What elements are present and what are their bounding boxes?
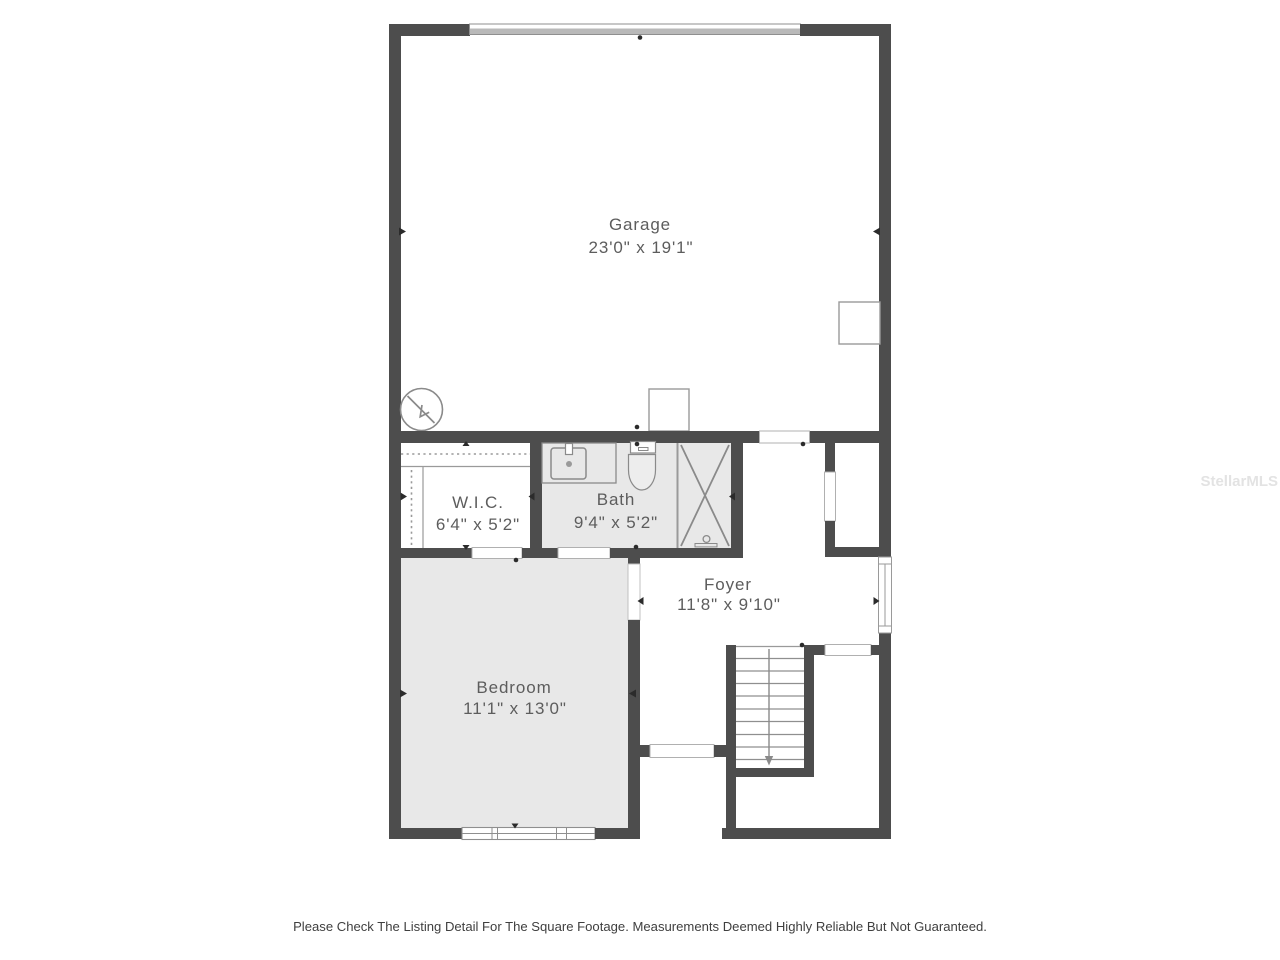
svg-text:23'0" x 19'1": 23'0" x 19'1" [589, 238, 694, 257]
svg-text:9'4" x 5'2": 9'4" x 5'2" [574, 513, 658, 532]
svg-text:6'4" x 5'2": 6'4" x 5'2" [436, 515, 520, 534]
svg-text:StellarMLS: StellarMLS [1200, 473, 1278, 490]
svg-text:Please Check The Listing Detai: Please Check The Listing Detail For The … [293, 919, 987, 934]
svg-text:Garage: Garage [609, 215, 671, 234]
svg-text:Bedroom: Bedroom [476, 678, 551, 697]
svg-text:11'1" x 13'0": 11'1" x 13'0" [463, 699, 567, 718]
svg-text:Bath: Bath [597, 490, 636, 509]
svg-text:Foyer: Foyer [704, 575, 752, 594]
svg-text:11'8" x 9'10": 11'8" x 9'10" [677, 595, 781, 614]
svg-text:W.I.C.: W.I.C. [452, 493, 504, 512]
